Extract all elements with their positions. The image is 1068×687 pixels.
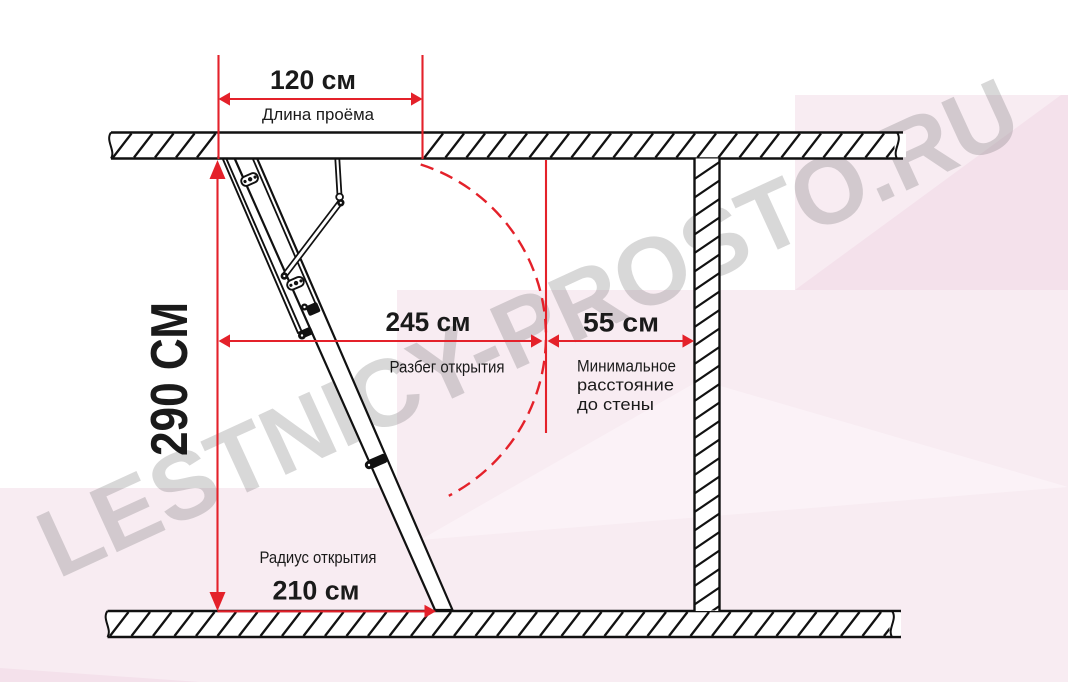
svg-text:Минимальное: Минимальное	[577, 358, 676, 376]
svg-text:расстояние: расстояние	[577, 377, 674, 395]
svg-text:Длина проёма: Длина проёма	[262, 105, 375, 124]
svg-text:Радиус открытия: Радиус открытия	[260, 548, 377, 567]
svg-text:120 см: 120 см	[270, 65, 356, 95]
svg-text:Разбег открытия: Разбег открытия	[390, 357, 505, 376]
svg-text:290 СМ: 290 СМ	[141, 302, 199, 456]
svg-text:245 см: 245 см	[386, 307, 471, 337]
svg-text:210 см: 210 см	[273, 575, 360, 605]
svg-text:55 см: 55 см	[583, 308, 659, 338]
svg-text:до стены: до стены	[577, 396, 654, 414]
